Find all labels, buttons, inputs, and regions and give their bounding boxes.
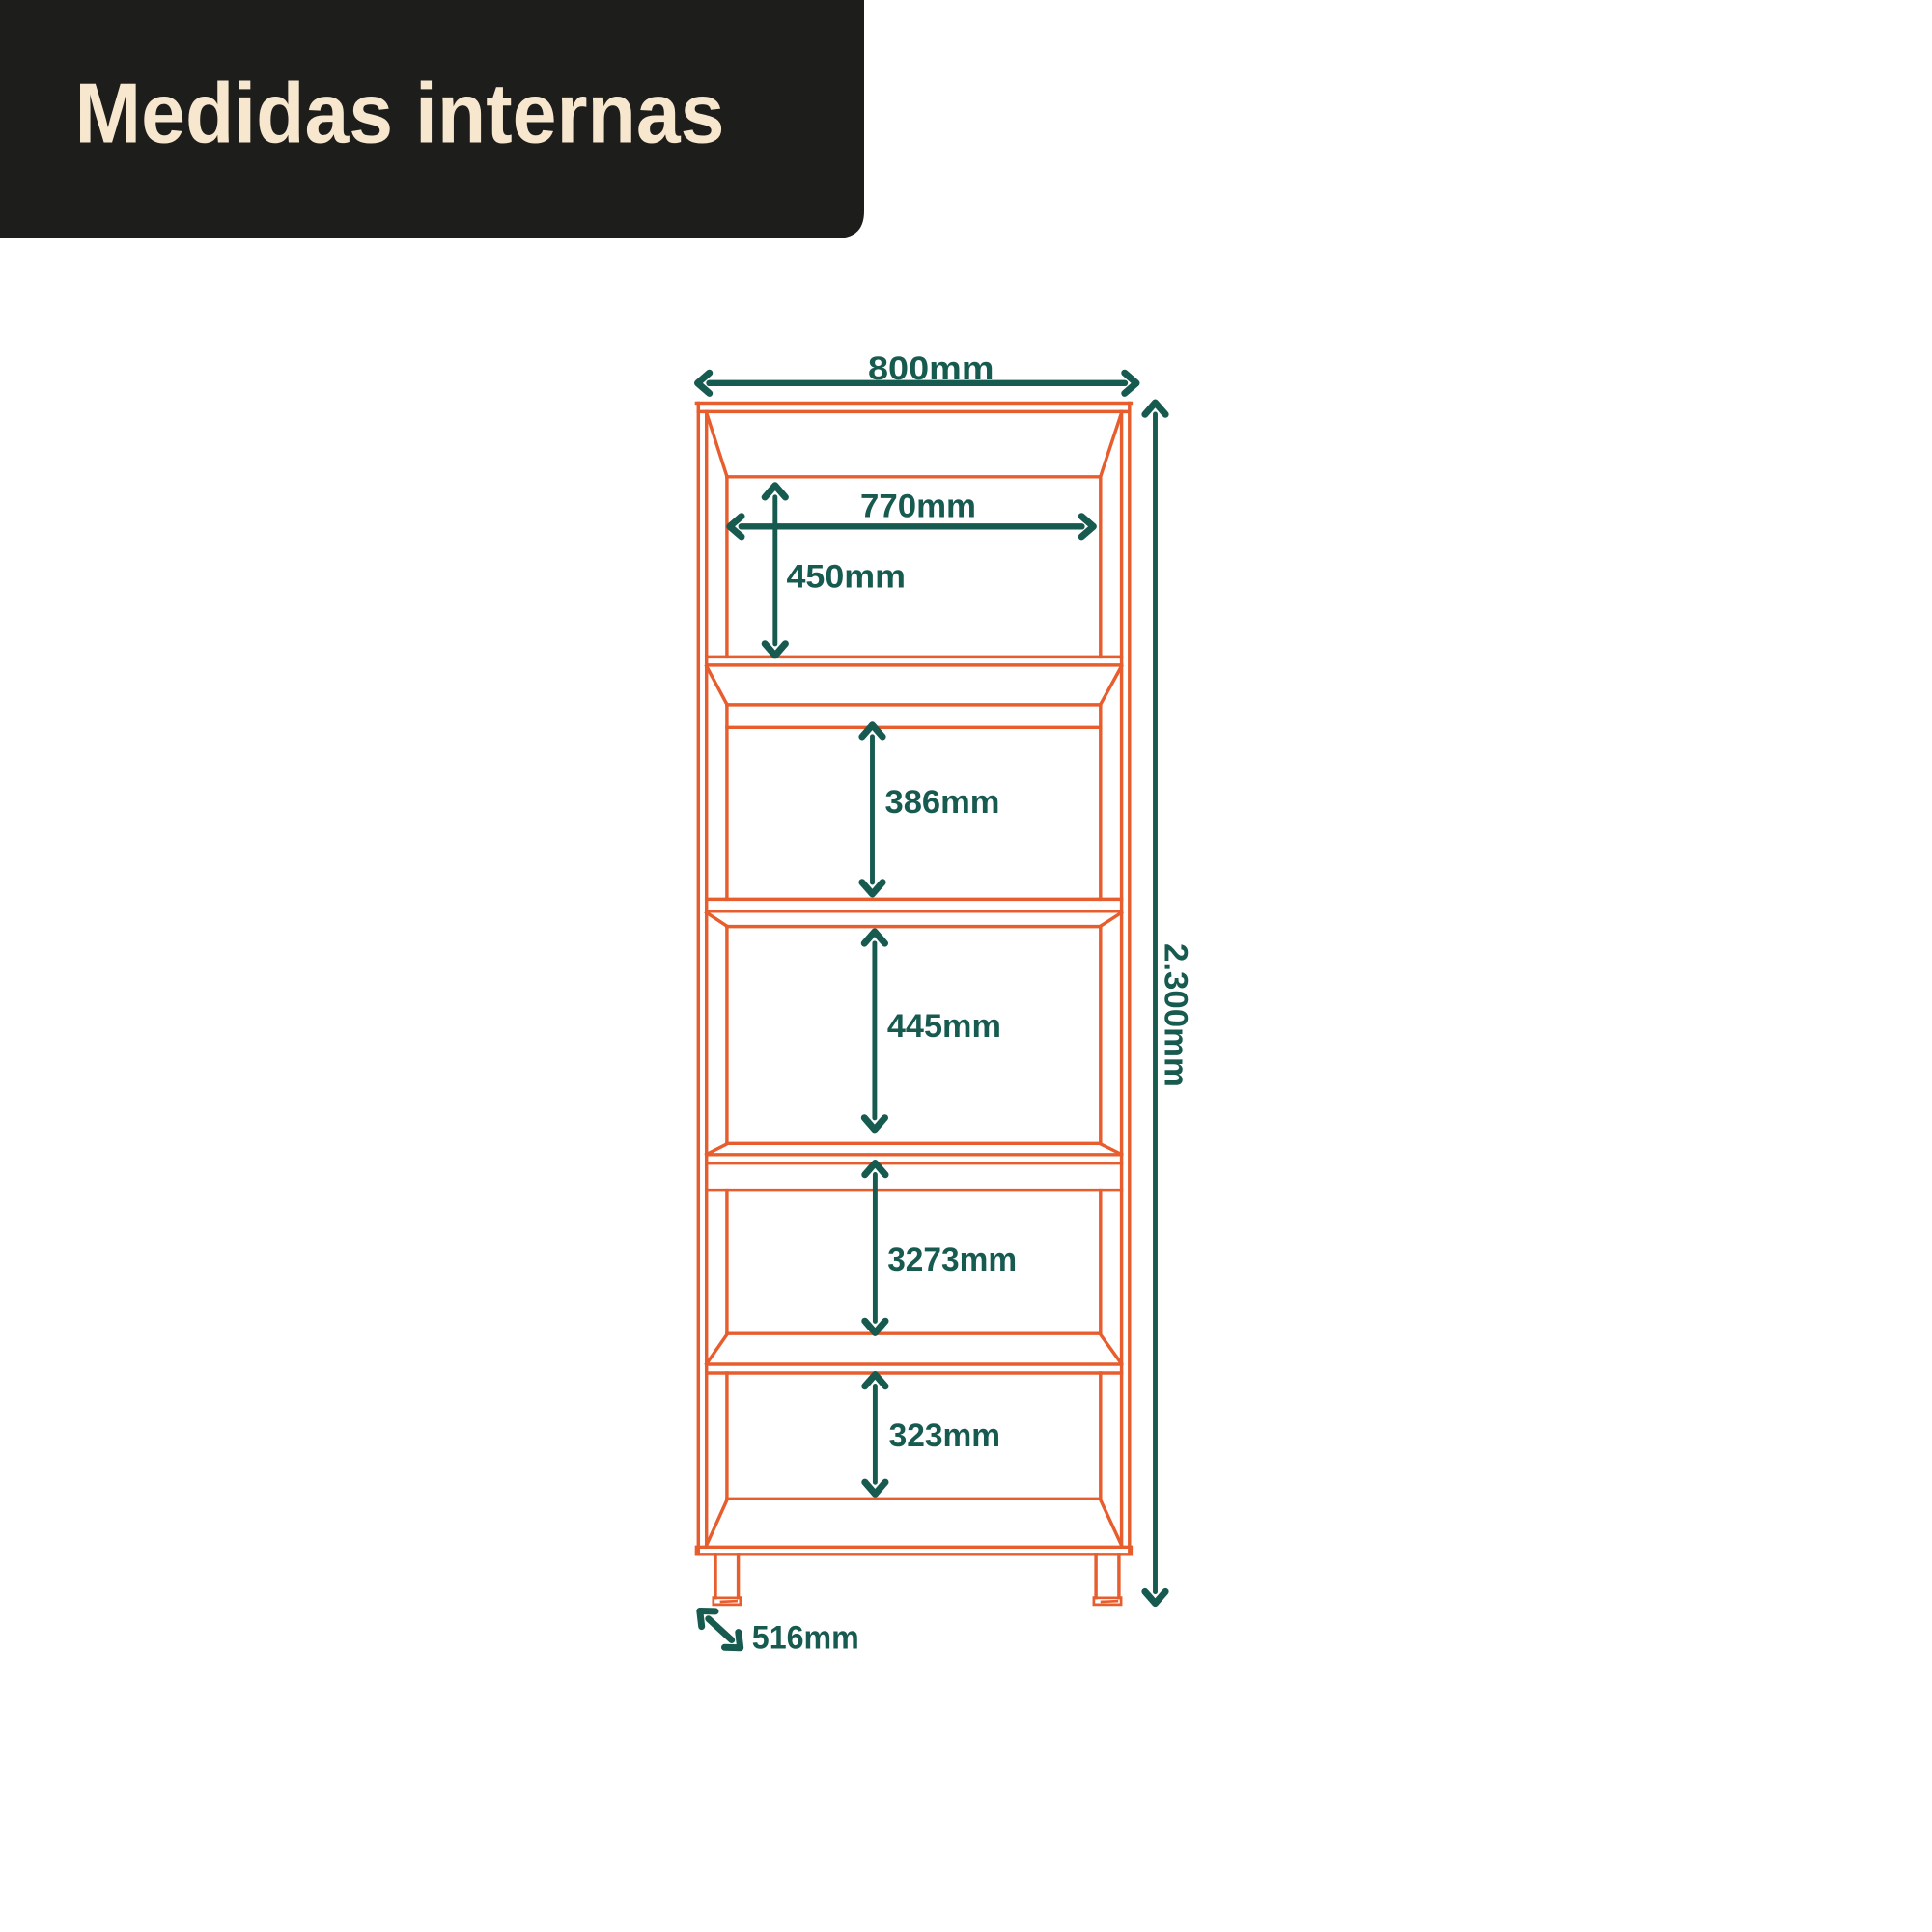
- svg-text:386mm: 386mm: [885, 784, 1000, 821]
- svg-text:323mm: 323mm: [889, 1417, 1001, 1454]
- svg-text:800mm: 800mm: [868, 350, 994, 387]
- svg-text:Medidas internas: Medidas internas: [75, 66, 725, 161]
- svg-text:450mm: 450mm: [787, 558, 907, 595]
- svg-text:770mm: 770mm: [860, 489, 976, 525]
- svg-text:445mm: 445mm: [887, 1008, 1001, 1045]
- svg-text:3273mm: 3273mm: [887, 1242, 1017, 1278]
- svg-text:516mm: 516mm: [752, 1620, 859, 1657]
- svg-text:2.300mm: 2.300mm: [1158, 943, 1194, 1087]
